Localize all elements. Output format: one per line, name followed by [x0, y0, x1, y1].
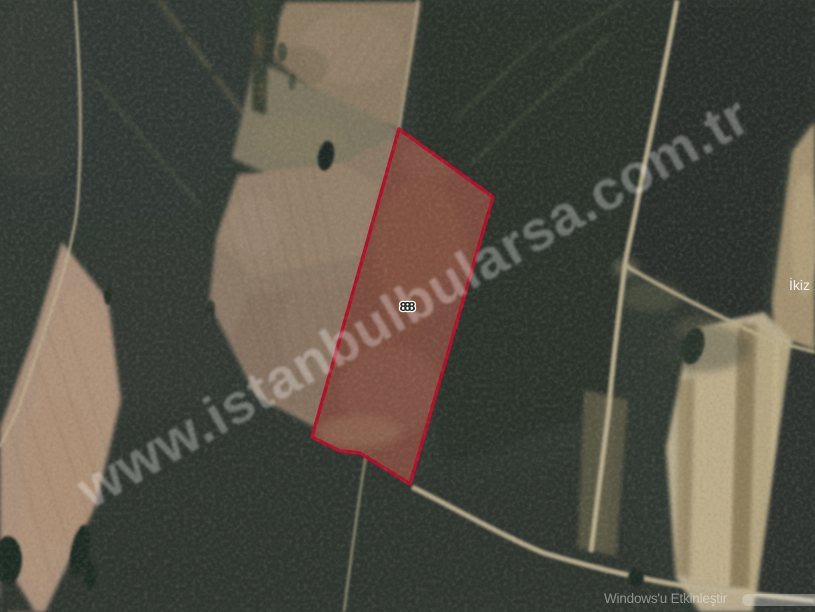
svg-text:İkiz: İkiz — [789, 276, 810, 293]
svg-text:Windows'u Etkinleştir: Windows'u Etkinleştir — [604, 591, 728, 606]
